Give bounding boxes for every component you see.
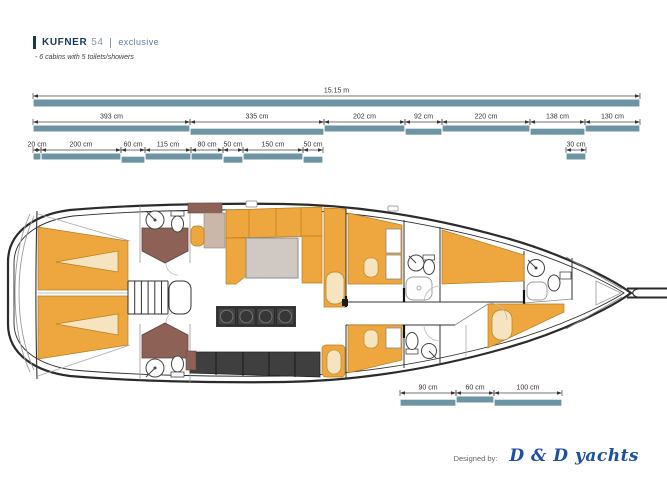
dim-arrow-right [186, 148, 191, 152]
dim-arrow-left [566, 148, 571, 152]
stool [191, 226, 204, 246]
dim-arrow-left [190, 120, 195, 124]
dim-arrow-left [33, 94, 38, 98]
toilet-icon [172, 216, 184, 232]
dim-arrow-left [324, 120, 329, 124]
dim-label: 220 cm [475, 114, 498, 121]
dim-label: 200 cm [70, 142, 93, 149]
dim-arrow-right [635, 120, 640, 124]
duvet [364, 258, 378, 277]
dim-arrow-left [530, 120, 535, 124]
dim-label: 20 cm [27, 142, 46, 149]
dim-label: 115 cm [157, 142, 180, 149]
dim-label: 30 cm [566, 142, 585, 149]
dim-arrow-right [36, 148, 41, 152]
designed-by-label: Designed by: [454, 454, 498, 463]
dim-bar [406, 129, 442, 135]
dim-arrow-left [456, 391, 461, 395]
wardrobe [386, 229, 401, 253]
dim-arrow-right [218, 148, 223, 152]
shower-pan [406, 277, 432, 300]
dim-label: 138 cm [546, 114, 569, 121]
dim-bar [146, 154, 191, 160]
dim-bar [191, 129, 324, 135]
toilet-icon [424, 260, 435, 275]
footer: Designed by: D & D yachts [454, 446, 639, 466]
dim-arrow-right [525, 120, 530, 124]
toilet-tank [171, 211, 184, 216]
dim-label: 60 cm [123, 142, 142, 149]
dim-bar [401, 400, 456, 406]
dim-bar [531, 129, 585, 135]
wardrobe [386, 255, 401, 279]
toilet-tank [171, 372, 184, 377]
dim-bar [304, 157, 323, 163]
dim-arrow-left [41, 148, 46, 152]
dim-label: 15.15 m [324, 88, 349, 95]
dim-arrow-left [400, 391, 405, 395]
dim-label: 90 cm [418, 385, 437, 392]
dim-label: 202 cm [353, 114, 376, 121]
dim-arrow-left [405, 120, 410, 124]
floor-plan-svg: 15.15 m393 cm335 cm202 cm92 cm220 cm138 … [0, 0, 667, 500]
dim-label: 80 cm [197, 142, 216, 149]
galley-cabinet [186, 351, 196, 370]
dim-label: 50 cm [303, 142, 322, 149]
shower-pan [527, 282, 547, 300]
page: KUFNER 54 exclusive - 6 cabins with 5 to… [0, 0, 667, 500]
dim-arrow-right [238, 148, 243, 152]
dim-arrow-right [580, 120, 585, 124]
toilet-icon [172, 356, 184, 372]
dim-arrow-right [185, 120, 190, 124]
dim-label: 60 cm [465, 385, 484, 392]
dim-arrow-right [557, 391, 562, 395]
boat-plan [8, 201, 667, 382]
dim-arrow-left [33, 120, 38, 124]
dim-bar [443, 126, 530, 132]
bow-armchair [492, 310, 512, 340]
dim-bar [586, 126, 640, 132]
dim-arrow-left [223, 148, 228, 152]
galley-counter [190, 352, 320, 377]
dim-label: 130 cm [601, 114, 624, 121]
dim-bar [495, 400, 562, 406]
dim-arrow-left [191, 148, 196, 152]
mid-cabin-port [348, 213, 402, 284]
dim-label: 100 cm [517, 385, 540, 392]
dim-arrow-left [494, 391, 499, 395]
dim-label: 150 cm [262, 142, 285, 149]
dim-label: 50 cm [223, 142, 242, 149]
dim-arrow-right [319, 120, 324, 124]
cabinet [204, 213, 225, 248]
dim-bar [567, 154, 586, 160]
dim-arrow-right [140, 148, 145, 152]
lounge-chair [326, 272, 344, 304]
dim-bar [244, 154, 303, 160]
dim-bar [34, 154, 41, 160]
toilet-icon [548, 275, 560, 291]
dim-label: 92 cm [414, 114, 433, 121]
dim-bar [122, 157, 145, 163]
dim-arrow-right [437, 120, 442, 124]
dim-arrow-left [121, 148, 126, 152]
dim-bar [192, 154, 223, 160]
toilet-tank [560, 272, 571, 279]
dim-arrow-left [442, 120, 447, 124]
duvet [364, 330, 378, 348]
dim-bar [34, 126, 190, 132]
bowsprit [627, 289, 667, 298]
dim-arrow-right [581, 148, 586, 152]
dim-label: 393 cm [100, 114, 123, 121]
sideboard [188, 203, 222, 213]
dim-arrow-right [451, 391, 456, 395]
dim-arrow-left [585, 120, 590, 124]
dim-arrow-left [243, 148, 248, 152]
dim-arrow-right [318, 148, 323, 152]
dim-bar [34, 100, 640, 107]
dim-bar [325, 126, 405, 132]
dim-arrow-right [116, 148, 121, 152]
dim-label: 335 cm [246, 114, 269, 121]
dim-bar [457, 397, 494, 403]
toilet-icon [406, 333, 418, 350]
salon-table [246, 238, 298, 278]
dim-arrow-right [635, 94, 640, 98]
dim-bar [224, 157, 243, 163]
stair-landing [169, 281, 191, 314]
dim-arrow-left [303, 148, 308, 152]
mast [342, 299, 348, 306]
dim-arrow-right [298, 148, 303, 152]
designer-brand: D & D yachts [509, 446, 639, 466]
dim-arrow-right [489, 391, 494, 395]
dim-arrow-right [400, 120, 405, 124]
dim-bar [42, 154, 121, 160]
dim-arrow-left [145, 148, 150, 152]
wardrobe [386, 328, 401, 348]
